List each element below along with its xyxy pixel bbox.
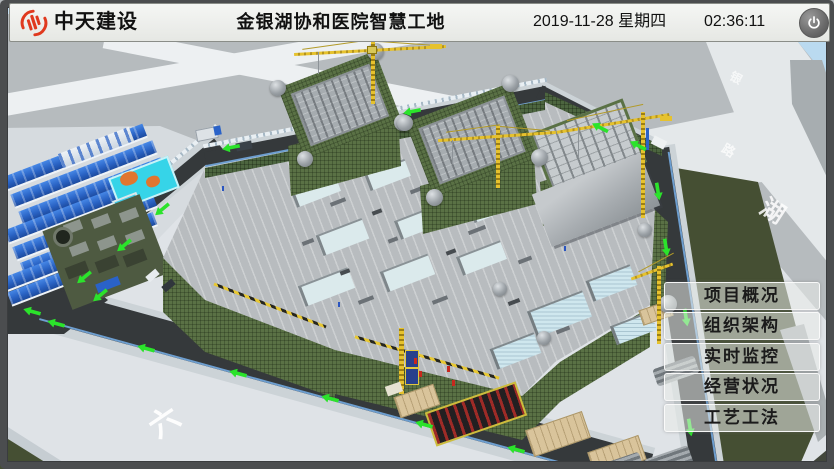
corner-turret — [426, 189, 443, 206]
power-button[interactable] — [799, 8, 829, 38]
crane-mast — [496, 126, 500, 188]
menu-button-project-overview[interactable]: 项目概况 — [664, 282, 820, 310]
menu-button-business-status[interactable]: 经营状况 — [664, 373, 820, 401]
crane-hook-line — [578, 128, 579, 158]
zhongtian-logo-icon — [20, 9, 48, 37]
worker — [452, 380, 455, 386]
menu-button-realtime-monitor[interactable]: 实时监控 — [664, 343, 820, 371]
worker — [414, 358, 417, 364]
time-label: 02:36:11 — [704, 4, 765, 40]
crane-counterweight — [430, 44, 442, 49]
worker — [447, 366, 450, 372]
menu-button-construction-methods[interactable]: 工艺工法 — [664, 404, 820, 432]
truck-cab — [213, 125, 222, 135]
worker — [338, 302, 340, 307]
worker — [419, 371, 422, 377]
garden-pond — [53, 227, 73, 247]
worker — [222, 186, 224, 191]
crane-mast — [657, 266, 661, 344]
page-title: 金银湖协和医院智慧工地 — [237, 4, 446, 40]
crane-counterweight — [660, 116, 672, 121]
corner-turret — [531, 149, 548, 166]
crane-cab — [367, 46, 377, 54]
corner-turret — [493, 282, 507, 296]
corner-turret — [270, 80, 286, 96]
crane-hook-line — [452, 140, 453, 164]
menu-button-organization[interactable]: 组织架构 — [664, 312, 820, 340]
worker — [564, 246, 566, 251]
road-marking-text: 六 — [144, 402, 186, 444]
corner-turret — [297, 151, 313, 167]
corner-turret — [638, 223, 652, 237]
corner-turret — [502, 75, 519, 92]
date-label: 2019-11-28 星期四 — [533, 4, 666, 40]
crane-hook-line — [318, 52, 319, 74]
gate-post — [646, 128, 649, 150]
crane-mast — [641, 112, 645, 218]
header-bar: 中天建设 金银湖协和医院智慧工地 2019-11-28 星期四 02:36:11 — [9, 3, 830, 42]
hoist-cage — [405, 368, 419, 385]
corner-turret — [537, 331, 551, 345]
brand-name: 中天建设 — [54, 4, 138, 40]
power-icon — [806, 15, 822, 31]
smart-site-dashboard: 六湖银路 中天建设 金银湖协和医院智慧工地 2019-11-28 星期四 02:… — [0, 0, 834, 469]
corner-turret — [397, 115, 413, 131]
